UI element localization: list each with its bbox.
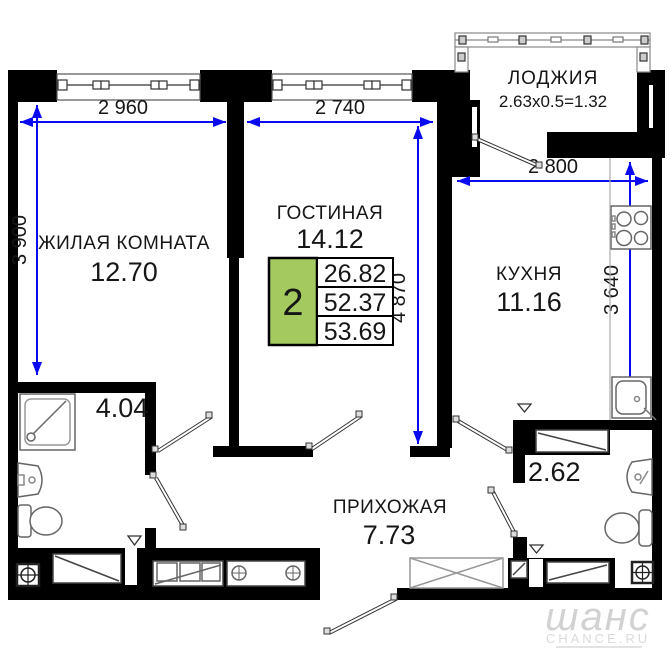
bathroom-area: 4.04 — [96, 393, 149, 423]
dimension-lounge-width: 2 740 — [247, 97, 433, 122]
cabinet-icon — [153, 561, 223, 586]
wc-cabinet-icon — [536, 430, 608, 452]
summary-living-area: 26.82 — [324, 260, 387, 288]
wc-vent-icon — [632, 562, 653, 583]
watermark: шанс CHANCE.RU — [545, 595, 650, 647]
wc-sink-icon — [627, 459, 652, 495]
shower-icon — [20, 394, 75, 450]
wall — [200, 70, 272, 102]
wall — [652, 138, 662, 600]
wall — [547, 132, 665, 158]
dim-lounge-width-label: 2 740 — [315, 97, 365, 119]
lounge-area: 14.12 — [296, 224, 364, 254]
living-room-area: 12.70 — [90, 257, 158, 287]
hallway-area: 7.73 — [363, 520, 416, 550]
wall-slit — [472, 107, 477, 147]
wall — [229, 258, 239, 448]
hall-wardrobe-icon — [410, 558, 503, 588]
lounge-label: ГОСТИНАЯ — [277, 203, 383, 224]
dresser-icon — [227, 561, 305, 586]
dim-kitchen-width-label: 2 800 — [528, 156, 578, 178]
stove-icon — [611, 206, 651, 249]
summary-box: 2 26.82 52.37 53.69 — [269, 258, 393, 346]
living-room-label: ЖИЛАЯ КОМНАТА — [38, 233, 210, 254]
wall — [8, 382, 155, 393]
kitchen-sink-icon — [612, 377, 656, 420]
hallway-label: ПРИХОЖАЯ — [333, 497, 447, 518]
summary-total-area: 53.69 — [324, 318, 387, 346]
dimension-kitchen-width: 2 800 — [457, 156, 648, 181]
sink-icon — [18, 463, 42, 497]
vent-icon — [17, 564, 39, 586]
watermark-caption: CHANCE.RU — [546, 631, 650, 646]
wall — [8, 70, 18, 600]
loggia-area: 2.63x0.5=1.32 — [499, 92, 607, 111]
kitchen-area: 11.16 — [496, 287, 562, 317]
kitchen-label: КУХНЯ — [496, 264, 562, 285]
wall — [213, 446, 313, 457]
wall — [437, 102, 452, 448]
wc-area: 2.62 — [528, 457, 581, 487]
wall-slit — [649, 85, 653, 128]
toilet-icon — [18, 505, 62, 537]
windows-layer — [57, 33, 650, 100]
wall — [227, 100, 244, 258]
vent-triangle-icon — [128, 404, 543, 553]
dim-kitchen-height-label: 3 640 — [601, 265, 623, 315]
summary-room-count: 2 — [282, 282, 303, 324]
wall — [412, 70, 470, 102]
summary-area-without-loggia: 52.37 — [324, 289, 387, 317]
loggia-glazing — [455, 33, 650, 72]
dim-living-width-label: 2 960 — [98, 97, 148, 119]
wall — [410, 446, 450, 457]
floor-plan: 2 960 2 740 2 800 3 900 4 870 3 640 ЖИЛА… — [0, 0, 670, 670]
loggia-label: ЛОДЖИЯ — [508, 68, 599, 89]
dim-living-height-label: 3 900 — [9, 215, 31, 265]
wc-toilet-icon — [605, 510, 652, 546]
wall — [513, 420, 525, 483]
